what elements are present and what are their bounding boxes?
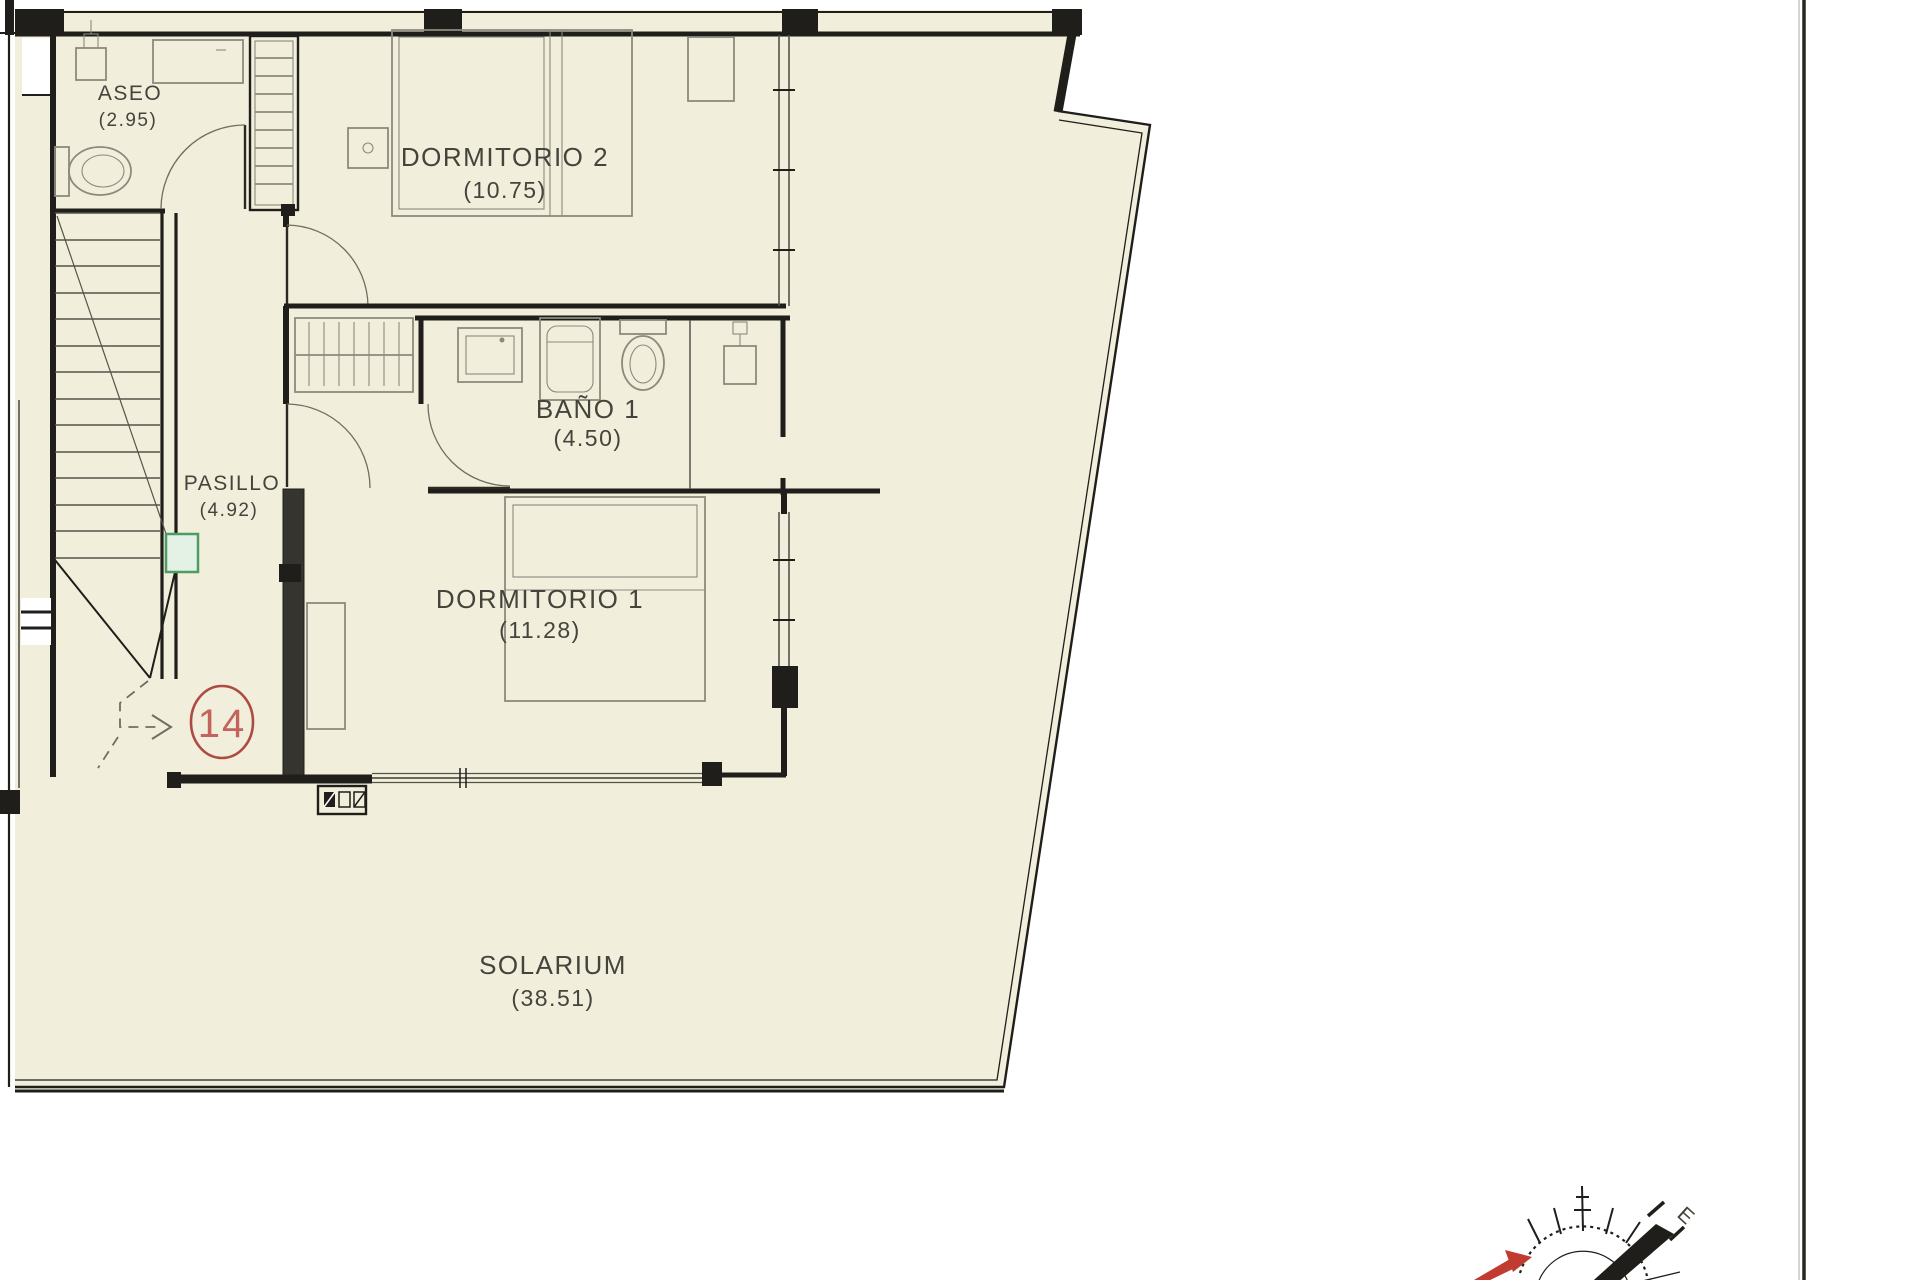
sheet-border <box>1799 0 1804 1280</box>
left-window <box>21 598 51 645</box>
label-bano1-area: (4.50) <box>553 425 622 451</box>
wall-pillar <box>782 9 818 35</box>
shutter-box-icon <box>318 786 366 814</box>
label-aseo-name: ASEO <box>98 82 162 105</box>
label-pasillo-name: PASILLO <box>184 472 281 495</box>
label-dorm2-name: DORMITORIO 2 <box>401 142 609 172</box>
label-aseo-area: (2.95) <box>99 110 158 131</box>
label-pasillo-area: (4.92) <box>200 500 259 521</box>
label-solarium-name: SOLARIUM <box>479 950 627 980</box>
label-dorm1-area: (11.28) <box>499 617 581 643</box>
floor-plan-page: ASEO (2.95) <box>0 0 1920 1280</box>
label-dorm2-area: (10.75) <box>463 177 546 203</box>
label-solarium-area: (38.51) <box>511 985 594 1011</box>
compass-rose-icon: E <box>1474 1186 1700 1280</box>
unit-number-text: 14 <box>198 702 247 746</box>
label-bano1-name: BAÑO 1 <box>536 394 640 424</box>
label-dorm1-name: DORMITORIO 1 <box>436 584 644 614</box>
floor-plan-canvas: ASEO (2.95) <box>0 0 1920 1280</box>
wall-pillar <box>15 9 64 35</box>
compass-east-letter: E <box>1673 1203 1700 1230</box>
wall-pillar <box>424 9 462 35</box>
stair-window-green <box>166 534 198 572</box>
wall-pier <box>0 790 20 814</box>
